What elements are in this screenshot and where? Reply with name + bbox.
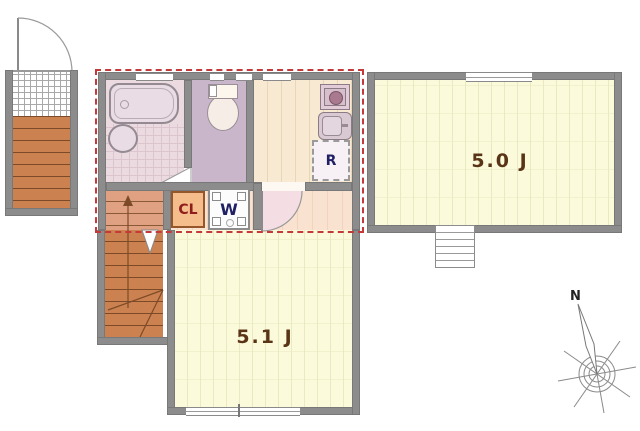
exterior-stairs: [13, 116, 70, 209]
wall-bath-toilet: [184, 80, 192, 168]
exterior-steps-down: [435, 225, 475, 268]
stairs-annotation: [105, 190, 163, 340]
compass-needle-icon: [578, 304, 597, 374]
kitchen-faucet-icon: [342, 124, 348, 127]
window-center-tick: [238, 404, 240, 417]
washer-label: W: [220, 200, 238, 219]
north-label: N: [570, 289, 581, 304]
compass-rose: N: [548, 282, 640, 424]
entrance-wall-bottom: [5, 208, 78, 216]
bathroom-sink: [108, 124, 138, 153]
window: [136, 73, 173, 81]
room-5-1j-wall-right: [352, 230, 360, 415]
refrigerator-space: R: [312, 140, 350, 181]
hallway-door-arc-icon: [262, 191, 304, 233]
window: [263, 73, 291, 81]
window: [236, 73, 252, 81]
stairs-up-arrow-icon: [123, 195, 133, 206]
kitchen-sink-basin: [322, 116, 342, 136]
entrance-wall-left: [5, 70, 13, 216]
wall-stairs-right-upper: [163, 190, 171, 230]
stairs-wall-bottom: [97, 337, 175, 345]
bathtub: [109, 83, 179, 124]
window-sash-line: [466, 77, 532, 78]
window-sash-line: [186, 411, 300, 412]
washer-space: W: [208, 188, 250, 230]
floor-plan: R CL W: [0, 0, 640, 431]
stairs-door-notch-icon: [142, 230, 158, 253]
room-5-1j-wall-left: [167, 230, 175, 415]
wall-right-of-door: [305, 182, 352, 191]
room-5-0j-label-text: 5.0 J: [471, 150, 528, 172]
room-5-1j-floor: [175, 230, 352, 407]
washer-pan-corner: [237, 217, 246, 226]
stove-burner-icon: [329, 91, 343, 105]
room-5-0j-wall-right: [614, 72, 622, 233]
unit-wall-right: [352, 72, 360, 230]
washer-pan-corner: [212, 217, 221, 226]
washer-drain-icon: [226, 219, 234, 227]
kitchen-sink: [318, 112, 352, 140]
toilet-flush-panel: [209, 85, 217, 97]
door-opening: [262, 182, 305, 191]
closet-label: CL: [178, 202, 197, 218]
unit-wall-left: [98, 72, 106, 230]
entrance-threshold: [13, 70, 70, 72]
room-5-0j-label: 5.0 J: [435, 150, 565, 172]
entrance-wall-right: [70, 70, 78, 216]
room-5-1j-label-text: 5.1 J: [236, 326, 293, 348]
closet: CL: [171, 191, 205, 228]
stove: [320, 84, 350, 110]
window: [210, 73, 224, 81]
entrance-porch-tile: [13, 72, 70, 116]
washer-pan-corner: [212, 192, 221, 201]
washer-pan-corner: [237, 192, 246, 201]
window: [466, 72, 532, 82]
bathtub-drain-icon: [120, 100, 129, 109]
toilet-bowl: [207, 95, 239, 131]
refrigerator-label: R: [326, 153, 337, 169]
room-5-0j-wall-left: [367, 72, 375, 233]
room-5-1j-label: 5.1 J: [200, 326, 330, 348]
room-5-0j-wall-bottom: [367, 225, 622, 233]
stairs-wall-left: [97, 230, 105, 345]
entrance-door-arc-icon: [4, 16, 76, 74]
window: [186, 407, 300, 416]
wall-door-stub: [253, 183, 262, 230]
wall-toilet-kitchen: [246, 80, 254, 183]
